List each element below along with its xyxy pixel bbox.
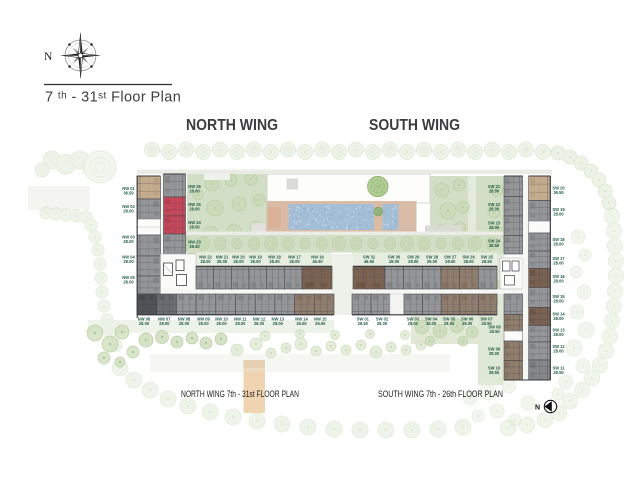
- svg-text:28.00: 28.00: [189, 207, 200, 212]
- svg-text:SOUTH WING 7th - 26th FLOOR P: SOUTH WING 7th - 26th FLOOR PLAN: [378, 389, 503, 399]
- svg-text:28.00: 28.00: [489, 207, 500, 212]
- svg-text:28.00: 28.00: [233, 259, 244, 264]
- svg-text:26.50: 26.50: [315, 321, 326, 326]
- svg-text:28.00: 28.00: [217, 259, 228, 264]
- svg-text:28.00: 28.00: [553, 332, 564, 337]
- svg-text:28.50: 28.50: [489, 243, 500, 248]
- svg-text:28.00: 28.00: [444, 321, 455, 326]
- svg-text:28.00: 28.00: [553, 316, 564, 321]
- svg-text:28.00: 28.00: [235, 321, 246, 326]
- svg-text:SOUTH WING: SOUTH WING: [369, 117, 460, 134]
- svg-text:28.00: 28.00: [553, 299, 564, 304]
- svg-text:28.00: 28.00: [273, 321, 284, 326]
- svg-text:N: N: [535, 405, 540, 412]
- svg-text:28.50: 28.50: [553, 370, 564, 375]
- svg-text:N: N: [44, 51, 53, 63]
- svg-text:29.00: 29.00: [427, 259, 438, 264]
- svg-text:28.00: 28.00: [389, 259, 400, 264]
- svg-text:28.00: 28.00: [269, 259, 280, 264]
- svg-text:28.00: 28.00: [553, 349, 564, 354]
- svg-text:28.50: 28.50: [489, 189, 500, 194]
- svg-text:28.00: 28.00: [123, 259, 134, 264]
- svg-text:28.00: 28.00: [445, 259, 456, 264]
- svg-text:28.50: 28.50: [358, 321, 369, 326]
- svg-text:28.00: 28.00: [489, 351, 500, 356]
- svg-text:28.00: 28.00: [553, 212, 564, 217]
- svg-text:28.00: 28.00: [408, 321, 419, 326]
- svg-text:28.00: 28.00: [553, 279, 564, 284]
- svg-text:28.00: 28.00: [216, 321, 227, 326]
- svg-text:28.00: 28.00: [254, 321, 265, 326]
- svg-text:28.00: 28.00: [123, 280, 134, 285]
- svg-text:36.50: 36.50: [553, 190, 564, 195]
- svg-text:28.50: 28.50: [189, 244, 200, 249]
- svg-text:NORTH WING 7th - 31st FLOOR P: NORTH WING 7th - 31st FLOOR PLAN: [181, 389, 299, 399]
- svg-text:28.00: 28.00: [408, 259, 419, 264]
- svg-text:28.00: 28.00: [289, 259, 300, 264]
- svg-text:28.00: 28.00: [189, 225, 200, 230]
- svg-text:28.00: 28.00: [463, 259, 474, 264]
- svg-text:28.00: 28.00: [462, 321, 473, 326]
- svg-text:28.00: 28.00: [179, 321, 190, 326]
- svg-text:28.00: 28.00: [426, 321, 437, 326]
- svg-text:28.00: 28.00: [489, 225, 500, 230]
- svg-text:28.00: 28.00: [553, 261, 564, 266]
- svg-text:46.50: 46.50: [312, 259, 323, 264]
- svg-text:28.50: 28.50: [489, 329, 500, 334]
- svg-text:28.50: 28.50: [482, 259, 493, 264]
- svg-text:28.00: 28.00: [123, 209, 134, 214]
- svg-text:28.00: 28.00: [250, 259, 261, 264]
- svg-text:28.00: 28.00: [200, 259, 211, 264]
- svg-text:28.50: 28.50: [489, 370, 500, 375]
- svg-text:28.00: 28.00: [189, 189, 200, 194]
- svg-text:28.00: 28.00: [159, 321, 170, 326]
- svg-text:28.00: 28.00: [139, 321, 150, 326]
- svg-text:28.00: 28.00: [123, 239, 134, 244]
- svg-text:NORTH WING: NORTH WING: [186, 117, 278, 134]
- svg-text:46.50: 46.50: [364, 259, 375, 264]
- svg-text:28.00: 28.00: [377, 321, 388, 326]
- svg-text:28.00: 28.00: [553, 242, 564, 247]
- svg-text:28.00: 28.00: [198, 321, 209, 326]
- svg-text:26.50: 26.50: [296, 321, 307, 326]
- svg-text:36.50: 36.50: [123, 191, 134, 196]
